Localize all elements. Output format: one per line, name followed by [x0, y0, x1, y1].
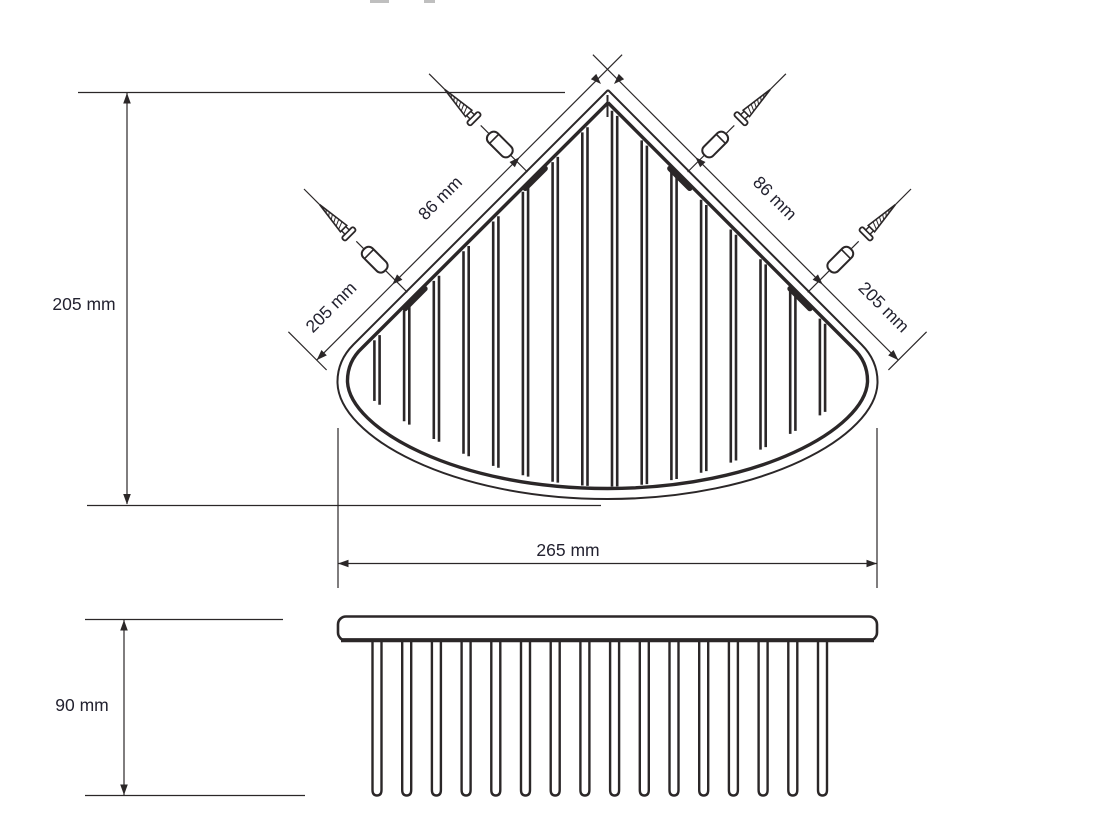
- basket-prong: [402, 641, 411, 796]
- basket-prong: [729, 641, 738, 796]
- side-view: [338, 617, 877, 796]
- cropped-text-artifact: [370, 0, 389, 3]
- basket-prong: [818, 641, 827, 796]
- basket-prong: [670, 641, 679, 796]
- dimension-label-right-wall-span: 205 mm: [855, 278, 914, 337]
- dimension-label-side-height: 90 mm: [55, 695, 108, 715]
- cropped-text-artifact: [424, 0, 435, 3]
- basket-prong: [699, 641, 708, 796]
- dimension-label-right-hole-spacing: 86 mm: [749, 172, 801, 224]
- side-view-top-rail: [338, 617, 877, 641]
- dimension-label-left-depth: 205 mm: [52, 294, 115, 314]
- basket-prong: [432, 641, 441, 796]
- dimension-label-left-wall-span: 205 mm: [302, 278, 361, 337]
- basket-prong: [788, 641, 797, 796]
- dimension-label-left-hole-spacing: 86 mm: [414, 172, 466, 224]
- basket-prong: [551, 641, 560, 796]
- basket-prong: [491, 641, 500, 796]
- basket-prong: [580, 641, 589, 796]
- basket-prong: [640, 641, 649, 796]
- basket-prong: [373, 641, 382, 796]
- basket-prongs: [373, 641, 828, 796]
- technical-drawing-page: 205 mm 265 mm 86 mm 205 mm 86 mm 205 mm …: [0, 0, 1109, 824]
- basket-prong: [759, 641, 768, 796]
- dimension-side-height: 90 mm: [55, 620, 305, 796]
- basket-prong: [521, 641, 530, 796]
- corner-basket-drawing: 205 mm 265 mm 86 mm 205 mm 86 mm 205 mm …: [0, 0, 1109, 824]
- basket-prong: [462, 641, 471, 796]
- basket-wires: [374, 111, 825, 487]
- dimension-label-front-width: 265 mm: [536, 540, 599, 560]
- basket-prong: [610, 641, 619, 796]
- left-edge-annotations: [288, 55, 622, 370]
